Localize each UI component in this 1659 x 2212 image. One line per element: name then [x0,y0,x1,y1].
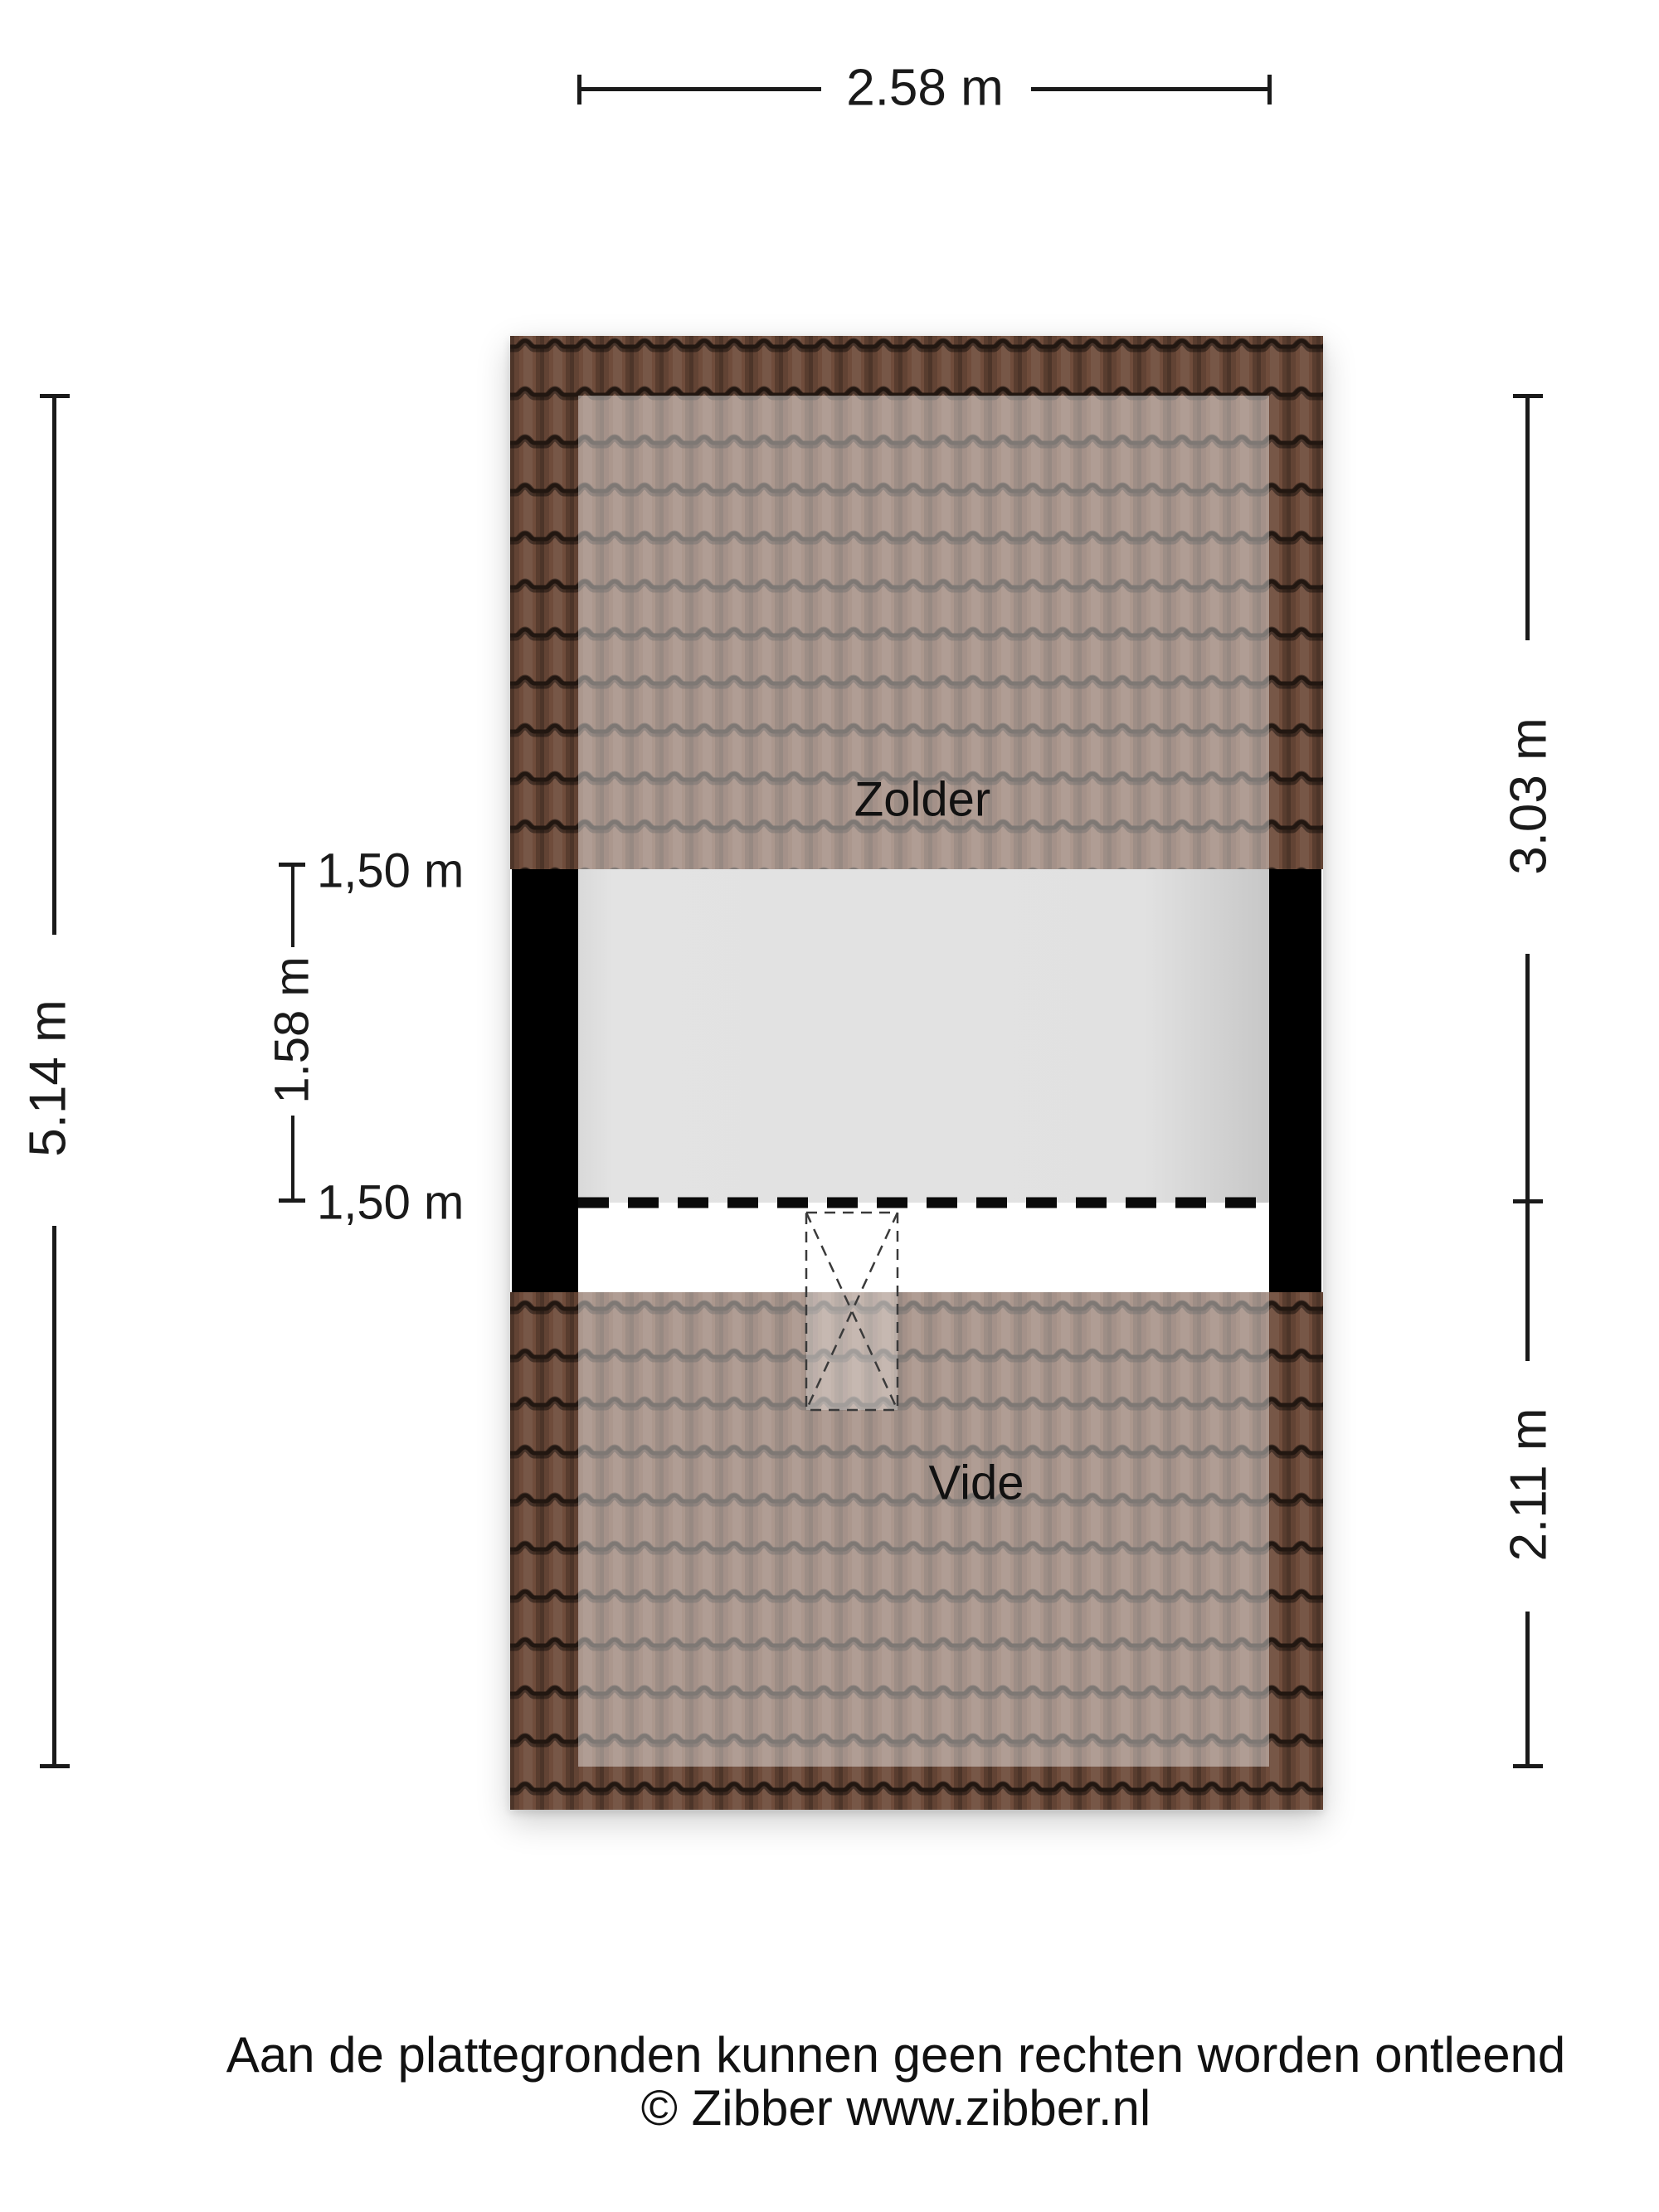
dim-right-line-4 [1525,1612,1530,1767]
dim-right-line-2 [1525,954,1530,1201]
footer: Aan de plattegronden kunnen geen rechten… [133,2029,1659,2135]
room-label-vide: Vide [928,1456,1024,1511]
copyright-text: © Zibber www.zibber.nl [133,2082,1659,2135]
dim-right-bottom-label: 2.11 m [1500,1408,1559,1562]
room-label-zolder: Zolder [854,772,990,828]
floorplan-image [510,336,1323,1810]
wall-left [512,869,578,1292]
dim-right-line-1 [1525,396,1530,640]
attic-floor [578,869,1269,1203]
dim-top-tick-right [1267,75,1272,105]
dim-top-line-left [579,87,821,91]
stair-opening-symbol [806,1213,898,1410]
dim-left-line-upper [52,396,56,935]
dim-left-tick-bottom [40,1764,70,1768]
dim-left-label: 5.14 m [19,999,78,1157]
dim-left-line-lower [52,1226,56,1767]
dim-right-line-3 [1525,1203,1530,1361]
disclaimer-text: Aan de plattegronden kunnen geen rechten… [133,2029,1659,2082]
headroom-label-top: 1,50 m [317,843,464,899]
dim-inner-tick-bottom [279,1198,305,1203]
dim-right-top-label: 3.03 m [1500,717,1559,875]
dim-right-tick-bottom [1513,1764,1543,1768]
wall-right [1269,869,1321,1292]
dim-top-line-right [1031,87,1269,91]
room-highlight-vide [578,1292,1269,1767]
dim-inner-label: 1.58 m [265,956,320,1103]
dim-inner-line-lower [291,1116,294,1201]
dim-top-label: 2.58 m [846,59,1004,118]
floor-open-strip [578,1203,1269,1292]
floorplan-drawing [510,336,1323,1810]
dim-inner-line-upper [291,864,294,947]
headroom-label-bottom: 1,50 m [317,1175,464,1231]
